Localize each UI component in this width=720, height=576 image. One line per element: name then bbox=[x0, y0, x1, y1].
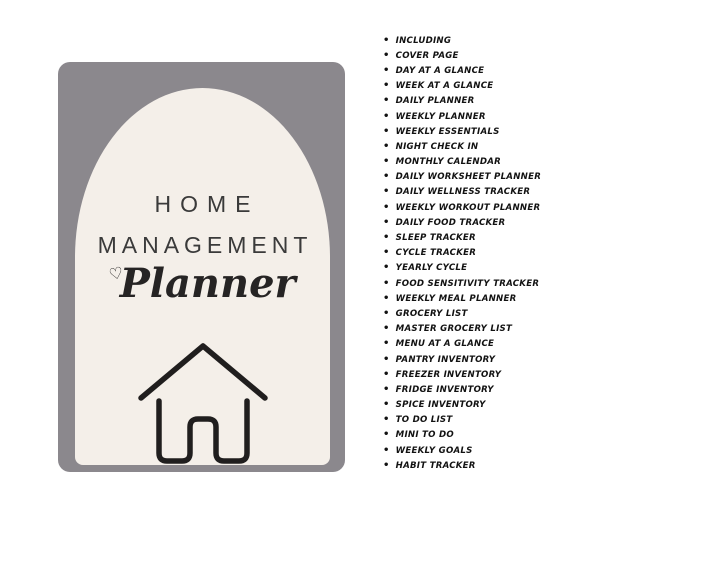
list-item: • MINI TO DO bbox=[383, 428, 541, 443]
house-roof bbox=[141, 346, 265, 398]
list-item-label: WEEKLY WORKOUT PLANNER bbox=[396, 203, 541, 213]
list-item: • COVER PAGE bbox=[383, 48, 541, 63]
list-item-label: NIGHT CHECK IN bbox=[396, 142, 479, 152]
list-item-label: PANTRY INVENTORY bbox=[396, 355, 496, 365]
list-item-label: COVER PAGE bbox=[396, 51, 459, 61]
list-item: • DAILY WELLNESS TRACKER bbox=[383, 185, 541, 200]
bullet-icon: • bbox=[383, 203, 390, 213]
list-item-label: DAY AT A GLANCE bbox=[396, 66, 485, 76]
list-item: • SLEEP TRACKER bbox=[383, 230, 541, 245]
list-item-label: GROCERY LIST bbox=[396, 309, 468, 319]
house-outline-icon bbox=[137, 342, 269, 468]
bullet-icon: • bbox=[383, 36, 390, 46]
cover-script-word: ♡Planner bbox=[75, 260, 330, 307]
bullet-icon: • bbox=[383, 385, 390, 395]
bullet-icon: • bbox=[383, 339, 390, 349]
list-item-label: WEEKLY MEAL PLANNER bbox=[396, 294, 517, 304]
bullet-icon: • bbox=[383, 218, 390, 228]
list-item: • MENU AT A GLANCE bbox=[383, 337, 541, 352]
list-item: • WEEKLY MEAL PLANNER bbox=[383, 291, 541, 306]
list-item-label: YEARLY CYCLE bbox=[396, 263, 468, 273]
list-item-label: DAILY WELLNESS TRACKER bbox=[396, 187, 531, 197]
list-item: • SPICE INVENTORY bbox=[383, 398, 541, 413]
list-item-label: MONTHLY CALENDAR bbox=[396, 157, 501, 167]
script-word-text: Planner bbox=[120, 260, 296, 307]
bullet-icon: • bbox=[383, 461, 390, 471]
list-item: • DAY AT A GLANCE bbox=[383, 63, 541, 78]
bullet-icon: • bbox=[383, 112, 390, 122]
bullet-icon: • bbox=[383, 81, 390, 91]
bullet-icon: • bbox=[383, 248, 390, 258]
bullet-icon: • bbox=[383, 127, 390, 137]
list-item: • WEEKLY PLANNER bbox=[383, 109, 541, 124]
bullet-icon: • bbox=[383, 66, 390, 76]
bullet-icon: • bbox=[383, 324, 390, 334]
cover-title-line2: MANAGEMENT bbox=[75, 232, 330, 259]
list-item: • INCLUDING bbox=[383, 33, 541, 48]
list-item: • NIGHT CHECK IN bbox=[383, 139, 541, 154]
list-item: • MONTHLY CALENDAR bbox=[383, 155, 541, 170]
list-item: • FREEZER INVENTORY bbox=[383, 367, 541, 382]
list-item-label: CYCLE TRACKER bbox=[396, 248, 476, 258]
bullet-icon: • bbox=[383, 370, 390, 380]
bullet-icon: • bbox=[383, 309, 390, 319]
list-item-label: SPICE INVENTORY bbox=[396, 400, 486, 410]
list-item-label: FOOD SENSITIVITY TRACKER bbox=[396, 279, 540, 289]
list-item: • DAILY FOOD TRACKER bbox=[383, 215, 541, 230]
list-item-label: INCLUDING bbox=[396, 36, 452, 46]
list-item-label: WEEK AT A GLANCE bbox=[396, 81, 494, 91]
bullet-icon: • bbox=[383, 415, 390, 425]
list-item: • DAILY WORKSHEET PLANNER bbox=[383, 170, 541, 185]
list-item-label: FREEZER INVENTORY bbox=[396, 370, 502, 380]
list-item: • WEEK AT A GLANCE bbox=[383, 79, 541, 94]
bullet-icon: • bbox=[383, 187, 390, 197]
bullet-icon: • bbox=[383, 400, 390, 410]
list-item: • TO DO LIST bbox=[383, 413, 541, 428]
bullet-icon: • bbox=[383, 294, 390, 304]
list-item: • DAILY PLANNER bbox=[383, 94, 541, 109]
list-item: • MASTER GROCERY LIST bbox=[383, 322, 541, 337]
bullet-icon: • bbox=[383, 430, 390, 440]
bullet-icon: • bbox=[383, 233, 390, 243]
list-item-label: TO DO LIST bbox=[396, 415, 453, 425]
list-item: • PANTRY INVENTORY bbox=[383, 352, 541, 367]
list-item: • WEEKLY GOALS bbox=[383, 443, 541, 458]
house-body bbox=[159, 401, 247, 461]
bullet-icon: • bbox=[383, 446, 390, 456]
bullet-icon: • bbox=[383, 279, 390, 289]
list-item-label: WEEKLY GOALS bbox=[396, 446, 473, 456]
list-item-label: WEEKLY PLANNER bbox=[396, 112, 486, 122]
bullet-icon: • bbox=[383, 51, 390, 61]
bullet-icon: • bbox=[383, 263, 390, 273]
list-item-label: MINI TO DO bbox=[396, 430, 454, 440]
list-item: • YEARLY CYCLE bbox=[383, 261, 541, 276]
list-item: • HABIT TRACKER bbox=[383, 458, 541, 473]
list-item-label: SLEEP TRACKER bbox=[396, 233, 476, 243]
list-item: • FRIDGE INVENTORY bbox=[383, 382, 541, 397]
list-item-label: HABIT TRACKER bbox=[396, 461, 476, 471]
bullet-icon: • bbox=[383, 172, 390, 182]
list-item: • FOOD SENSITIVITY TRACKER bbox=[383, 276, 541, 291]
bullet-icon: • bbox=[383, 157, 390, 167]
list-item: • GROCERY LIST bbox=[383, 306, 541, 321]
list-item-label: MENU AT A GLANCE bbox=[396, 339, 494, 349]
bullet-icon: • bbox=[383, 142, 390, 152]
list-item-label: DAILY FOOD TRACKER bbox=[396, 218, 506, 228]
planner-cover-card: HOME MANAGEMENT ♡Planner bbox=[58, 62, 345, 472]
bullet-icon: • bbox=[383, 355, 390, 365]
list-item-label: WEEKLY ESSENTIALS bbox=[396, 127, 500, 137]
cover-arch-panel: HOME MANAGEMENT ♡Planner bbox=[75, 88, 330, 465]
contents-list: • INCLUDING • COVER PAGE • DAY AT A GLAN… bbox=[383, 33, 541, 473]
list-item: • WEEKLY WORKOUT PLANNER bbox=[383, 200, 541, 215]
list-item-label: DAILY PLANNER bbox=[396, 96, 475, 106]
list-item: • WEEKLY ESSENTIALS bbox=[383, 124, 541, 139]
list-item-label: MASTER GROCERY LIST bbox=[396, 324, 512, 334]
bullet-icon: • bbox=[383, 96, 390, 106]
list-item: • CYCLE TRACKER bbox=[383, 246, 541, 261]
cover-title-line1: HOME bbox=[75, 191, 330, 218]
list-item-label: FRIDGE INVENTORY bbox=[396, 385, 494, 395]
list-item-label: DAILY WORKSHEET PLANNER bbox=[396, 172, 541, 182]
